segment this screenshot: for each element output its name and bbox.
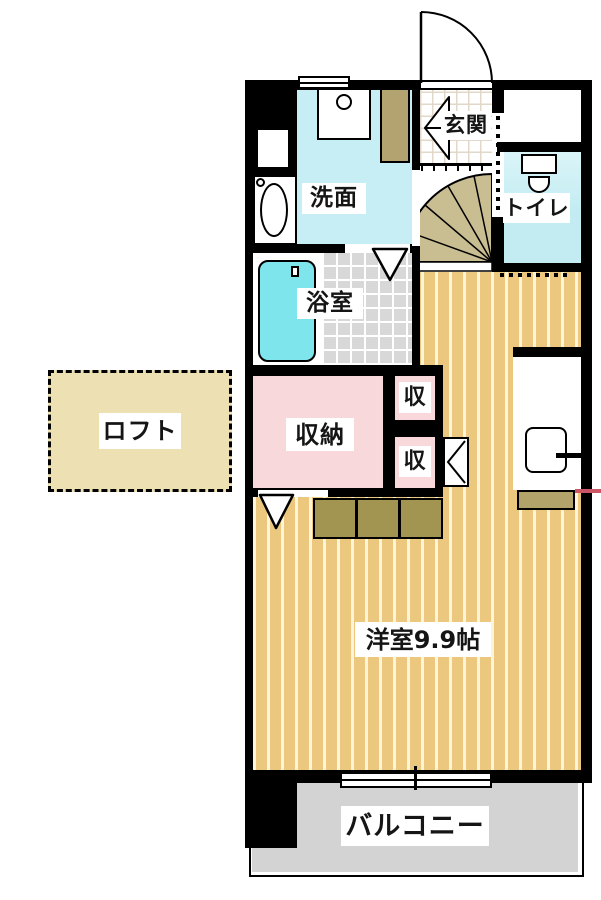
washroom-label: 洗面	[302, 183, 366, 214]
loft-step-3	[399, 498, 443, 539]
bathroom-label: 浴室	[297, 288, 363, 319]
entrance-door-swing	[413, 6, 503, 90]
storage-label: 収納	[286, 418, 354, 451]
wall-toilet-top	[497, 142, 592, 152]
toilet-label: トイレ	[503, 193, 570, 223]
washroom-door-opening	[412, 170, 420, 246]
fan-steps-graphic	[418, 168, 492, 272]
bathroom-door-triangle	[371, 247, 409, 283]
entrance-hall-steps	[418, 168, 492, 272]
wash-basin-faucet	[256, 178, 265, 187]
washing-machine-drain	[336, 94, 352, 110]
wash-basin-bowl	[260, 183, 288, 237]
kitchen-faucet-mark	[556, 453, 581, 458]
wall-toilet-bottom	[492, 263, 592, 272]
wall-left	[245, 175, 253, 772]
storage-small-top-label: 収	[399, 382, 431, 413]
balcony-wall-block	[245, 778, 297, 848]
loft-step-1	[313, 498, 357, 539]
loft-room: ロフト	[48, 370, 232, 492]
wall-storage-small-mid	[395, 420, 435, 437]
wall-right	[581, 80, 592, 772]
wall-left-window	[258, 130, 288, 167]
entrance-label: 玄関	[441, 111, 491, 140]
bathtub-handle	[291, 266, 299, 277]
wall-kitchen-top	[513, 347, 581, 357]
closet-bifold-door	[443, 437, 469, 487]
wall-bathroom-bottom	[245, 365, 440, 376]
shoe-cabinet	[380, 88, 410, 163]
main-room-label: 洋室9.9帖	[355, 622, 491, 657]
wall-storage-right	[383, 376, 395, 488]
kitchen-base-khaki	[517, 490, 575, 510]
wall-storage-col-right	[435, 365, 443, 497]
genkan-step-ticks	[421, 166, 491, 171]
loft-overhang-dotted	[500, 273, 570, 277]
window-mullion	[300, 82, 348, 84]
kitchen-sink	[525, 427, 567, 473]
storage-door-triangle	[258, 493, 296, 531]
floorplan: ロフト	[0, 0, 601, 900]
boundary-red-line	[575, 489, 601, 493]
toilet-door-dotted	[496, 116, 500, 214]
balcony-label: バルコニー	[341, 806, 489, 846]
loft-step-2	[356, 498, 400, 539]
loft-label: ロフト	[99, 413, 181, 449]
storage-small-bottom-label: 収	[399, 446, 431, 477]
sliding-window-center-tick	[414, 766, 417, 790]
toilet-tank	[521, 154, 557, 174]
bifold-door-lines	[445, 439, 467, 485]
